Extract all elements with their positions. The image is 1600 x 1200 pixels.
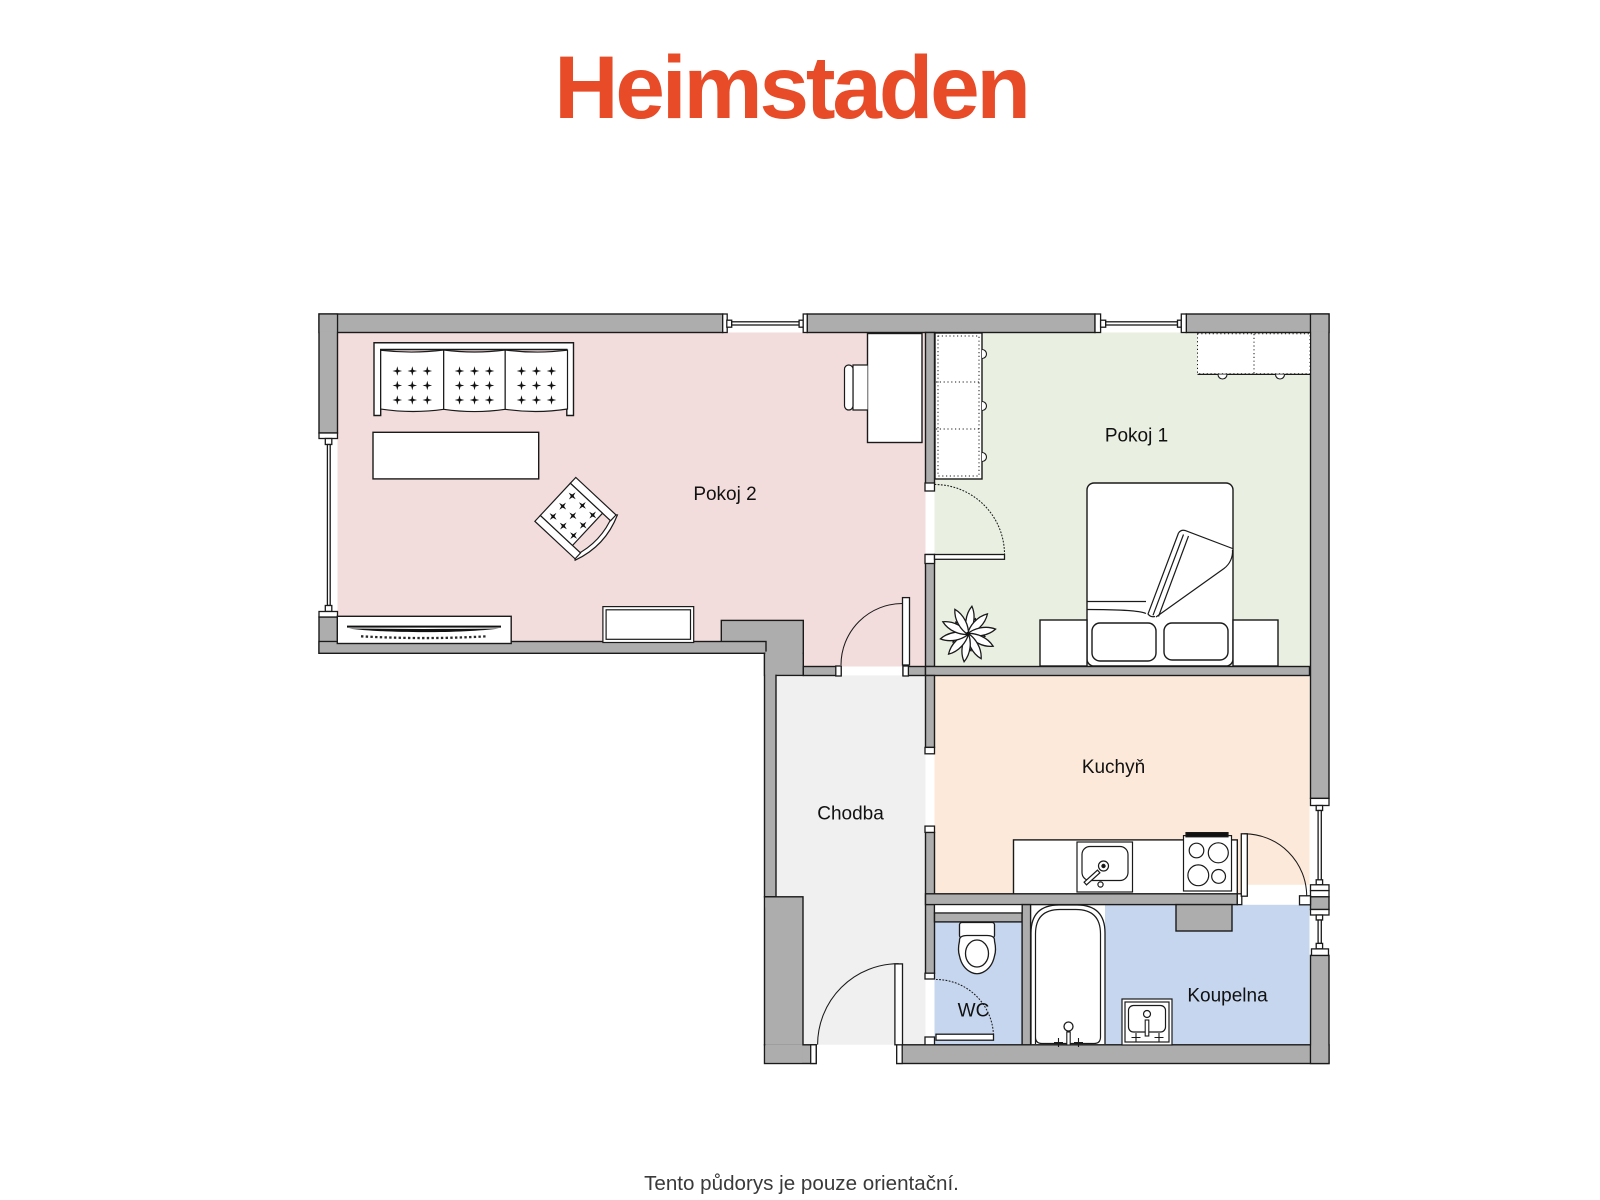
- svg-text:Kuchyň: Kuchyň: [1082, 757, 1145, 778]
- svg-text:Tento půdorys je pouze orienta: Tento půdorys je pouze orientační.: [644, 1172, 959, 1195]
- svg-text:Pokoj 2: Pokoj 2: [693, 484, 756, 505]
- svg-text:Pokoj 1: Pokoj 1: [1105, 426, 1168, 447]
- svg-text:Chodba: Chodba: [817, 804, 884, 825]
- svg-text:Koupelna: Koupelna: [1187, 986, 1268, 1007]
- svg-text:WC: WC: [958, 1001, 990, 1022]
- svg-text:Heimstaden: Heimstaden: [554, 37, 1028, 137]
